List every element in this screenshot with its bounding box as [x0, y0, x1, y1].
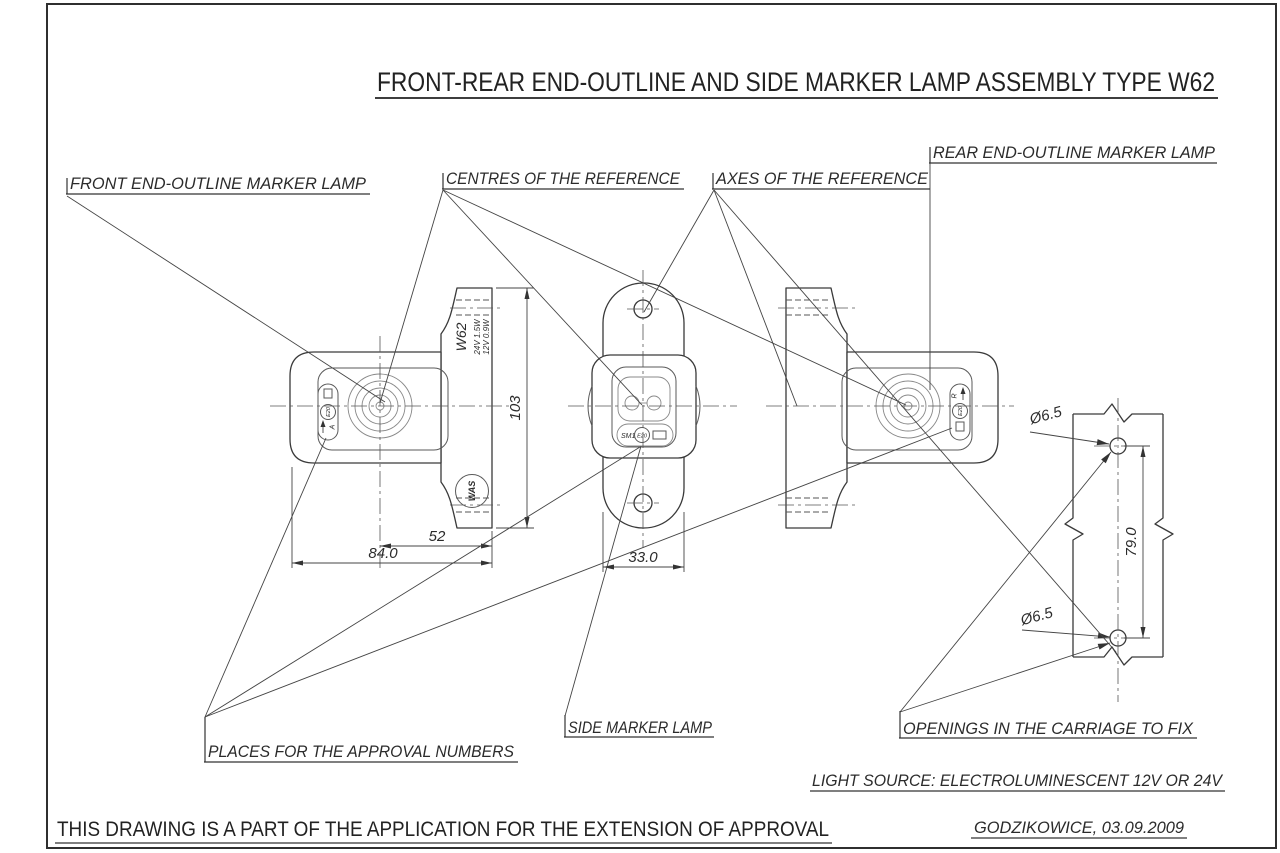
rear-bracket	[786, 288, 847, 528]
drawing-sheet: E20 A WAS W62 24V 1.5W 12V 0.9W SM1	[0, 0, 1280, 853]
dim-hole-dia-bottom: Ø6.5	[1018, 604, 1055, 629]
plate-right-edge	[1155, 414, 1173, 657]
drawing-title: FRONT-REAR END-OUTLINE AND SIDE MARKER L…	[377, 67, 1215, 97]
front-model-marking: W62	[453, 322, 469, 351]
front-view: E20 A WAS W62 24V 1.5W 12V 0.9W	[290, 288, 492, 528]
drawing-canvas: E20 A WAS W62 24V 1.5W 12V 0.9W SM1	[0, 0, 1280, 853]
dim-front-width: 84.0	[368, 545, 398, 562]
callout-axes: AXES OF THE REFERENCE	[715, 169, 929, 188]
callout-rear-lamp: REAR END-OUTLINE MARKER LAMP	[933, 143, 1216, 162]
side-code-marking: SM1	[621, 433, 636, 440]
rear-direction-letter: R	[952, 393, 959, 398]
front-direction-letter: A	[330, 424, 337, 430]
callout-approval-places: PLACES FOR THE APPROVAL NUMBERS	[208, 742, 515, 761]
front-e-mark: E20	[326, 406, 332, 417]
rear-view: R E20	[786, 288, 998, 528]
light-source-note: LIGHT SOURCE: ELECTROLUMINESCENT 12V OR …	[812, 771, 1224, 790]
front-body	[290, 352, 441, 463]
rear-e-mark: E20	[958, 405, 964, 416]
front-power-12v: 12V 0.9W	[482, 318, 491, 355]
side-view: SM1 E20	[588, 283, 700, 528]
dim-hole-dia-top: Ø6.5	[1027, 403, 1064, 428]
callout-openings: OPENINGS IN THE CARRIAGE TO FIX	[903, 719, 1194, 738]
centerlines	[270, 270, 1142, 702]
was-logo-icon: WAS	[456, 475, 489, 508]
callout-front-lamp: FRONT END-OUTLINE MARKER LAMP	[70, 174, 367, 193]
dim-front-offset: 52	[429, 528, 446, 545]
callout-centres: CENTRES OF THE REFERENCE	[446, 169, 681, 188]
dimensions: 84.0 52 103 33.0 79.0 Ø6.5 Ø6.5	[292, 288, 1150, 640]
side-e-mark: E20	[637, 434, 648, 440]
front-power-24v: 24V 1.5W	[473, 318, 482, 356]
place-and-date: GODZIKOWICE, 03.09.2009	[974, 818, 1185, 837]
mounting-plate	[1065, 404, 1173, 665]
plate-left-edge	[1065, 414, 1083, 657]
svg-text:WAS: WAS	[467, 481, 477, 502]
dim-front-height: 103	[507, 395, 524, 421]
callout-side-lamp: SIDE MARKER LAMP	[568, 718, 713, 737]
dim-hole-spacing: 79.0	[1123, 527, 1140, 557]
approval-statement: THIS DRAWING IS A PART OF THE APPLICATIO…	[57, 818, 829, 841]
